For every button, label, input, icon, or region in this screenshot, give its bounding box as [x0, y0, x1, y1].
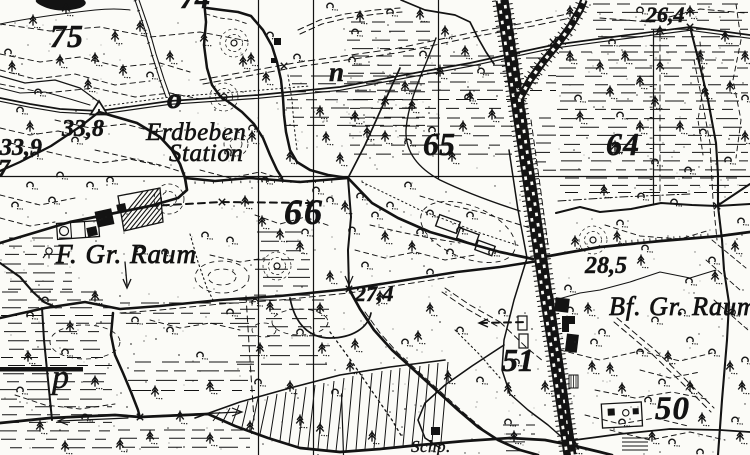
svg-text:65: 65 [423, 126, 455, 162]
svg-text:F. Gr. Raum: F. Gr. Raum [55, 239, 197, 269]
svg-text:p: p [50, 359, 69, 396]
svg-text:75: 75 [50, 18, 84, 54]
svg-text:26,4: 26,4 [645, 2, 685, 27]
svg-text:Schp.: Schp. [411, 437, 451, 455]
svg-text:27,4: 27,4 [354, 281, 394, 306]
svg-text:28,5: 28,5 [584, 253, 627, 279]
svg-text:57: 57 [0, 156, 11, 182]
svg-text:o: o [167, 82, 182, 115]
svg-text:n: n [329, 57, 344, 87]
svg-text:Bf. Gr. Raum: Bf. Gr. Raum [609, 292, 750, 321]
svg-text:Station: Station [169, 140, 243, 167]
svg-text:51: 51 [502, 342, 534, 378]
svg-text:74: 74 [180, 0, 210, 15]
svg-text:33,8: 33,8 [61, 116, 104, 142]
svg-text:50: 50 [655, 391, 690, 427]
svg-text:66: 66 [284, 192, 324, 232]
svg-text:64: 64 [606, 126, 640, 162]
